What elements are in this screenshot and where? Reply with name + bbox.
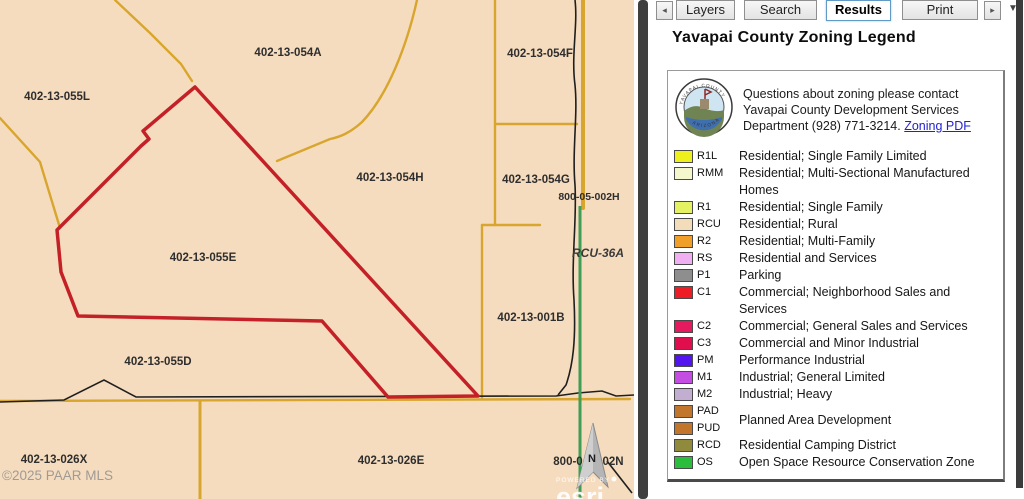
zoning-pdf-link[interactable]: Zoning PDF: [904, 119, 971, 133]
parcel-label: 02N: [602, 456, 623, 468]
zone-color-swatch: [674, 388, 693, 401]
svg-text:esri: esri: [556, 482, 604, 499]
tab-layers[interactable]: Layers: [676, 0, 735, 20]
parcel-label: 402-13-026X: [21, 454, 88, 466]
zone-color-swatch: [674, 201, 693, 214]
parcel-label: 800-0: [553, 456, 582, 468]
parcel-label: 402-13-055D: [124, 356, 191, 368]
legend-row: RCU Residential; Rural: [674, 216, 995, 233]
tabs-scroll-right-button[interactable]: ▸: [984, 1, 1001, 20]
panel-tab-bar: ◂ Layers Search Results Print ▸ ▼: [656, 0, 1020, 21]
zone-color-swatch: [674, 337, 693, 350]
legend-row: R2 Residential; Multi-Family: [674, 233, 995, 250]
zone-color-swatch: [674, 439, 693, 452]
legend-row: R1 Residential; Single Family: [674, 199, 995, 216]
zone-color-swatch: [674, 286, 693, 299]
zone-color-swatch: [674, 405, 693, 418]
legend-row: C1 Commercial; Neighborhood Sales and Se…: [674, 284, 995, 318]
legend-row: C3 Commercial and Minor Industrial: [674, 335, 995, 352]
zone-color-swatch: [674, 167, 693, 180]
map-background: [0, 0, 634, 499]
svg-text:N: N: [588, 453, 596, 465]
parcel-map[interactable]: 402-13-054A 402-13-054F 402-13-055L 402-…: [0, 0, 634, 499]
zone-color-swatch: [674, 218, 693, 231]
parcel-label: 402-13-026E: [358, 455, 425, 467]
tabs-scroll-left-button[interactable]: ◂: [656, 1, 673, 20]
tab-search[interactable]: Search: [744, 0, 817, 20]
parcel-label: 402-13-054F: [507, 48, 573, 60]
legend-row: RS Residential and Services: [674, 250, 995, 267]
zone-color-swatch: [674, 354, 693, 367]
tab-results[interactable]: Results: [826, 0, 891, 21]
parcel-label: 402-13-054H: [356, 172, 423, 184]
tab-print[interactable]: Print: [902, 0, 978, 20]
parcel-label: 402-13-055E: [170, 252, 237, 264]
zoning-legend-box: YAVAPAI COUNTY ARIZONA Questions about z…: [667, 70, 1005, 482]
window-border: [1016, 0, 1023, 488]
zoning-district-label: RCU-36A: [572, 246, 624, 260]
parcel-label: 402-13-001B: [497, 312, 564, 324]
legend-row: M2 Industrial; Heavy: [674, 386, 995, 403]
zoning-contact-text: Questions about zoning please contact Ya…: [743, 86, 971, 134]
zone-color-swatch: [674, 235, 693, 248]
legend-row-pad-pud: PAD PUD Planned Area Development: [674, 403, 995, 437]
legend-row: PM Performance Industrial: [674, 352, 995, 369]
zone-color-swatch: [674, 422, 693, 435]
zone-color-swatch: [674, 150, 693, 163]
parcel-label: 402-13-054G: [502, 174, 570, 186]
panel-title: Yavapai County Zoning Legend: [672, 29, 916, 47]
panel-splitter[interactable]: [638, 0, 648, 499]
legend-row: RMM Residential; Multi-Sectional Manufac…: [674, 165, 995, 199]
zone-color-swatch: [674, 252, 693, 265]
parcel-label: 402-13-054A: [254, 47, 321, 59]
zone-color-swatch: [674, 269, 693, 282]
mls-watermark: ©2025 PAAR MLS: [2, 468, 113, 483]
parcel-label: 800-05-002H: [558, 191, 619, 203]
legend-row: R1L Residential; Single Family Limited: [674, 148, 995, 165]
results-panel: ◂ Layers Search Results Print ▸ ▼ Yavapa…: [648, 0, 1024, 499]
county-seal: YAVAPAI COUNTY ARIZONA: [674, 77, 734, 137]
zone-color-swatch: [674, 371, 693, 384]
legend-row: RCD Residential Camping District: [674, 437, 995, 454]
zone-color-swatch: [674, 456, 693, 469]
legend-row: C2 Commercial; General Sales and Service…: [674, 318, 995, 335]
legend-row: P1 Parking: [674, 267, 995, 284]
zone-color-swatch: [674, 320, 693, 333]
legend-row: OS Open Space Resource Conservation Zone: [674, 454, 995, 471]
legend-row: M1 Industrial; General Limited: [674, 369, 995, 386]
parcel-label: 402-13-055L: [24, 91, 90, 103]
